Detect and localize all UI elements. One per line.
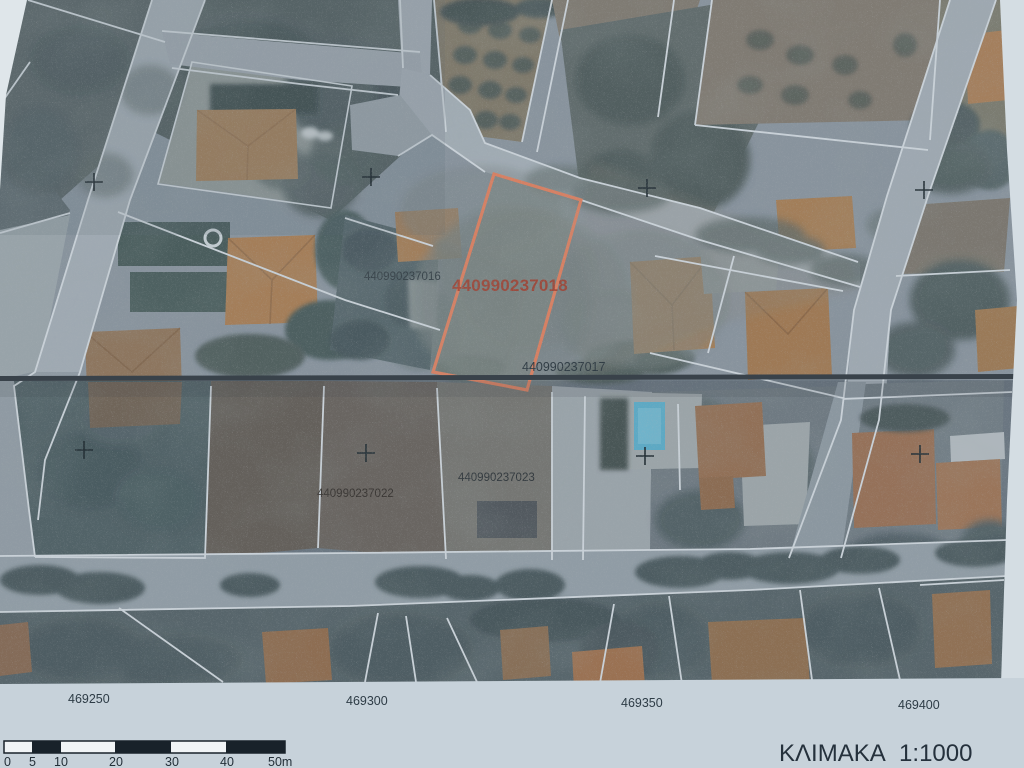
svg-text:469350: 469350 xyxy=(621,696,663,710)
svg-text:50m: 50m xyxy=(268,755,292,768)
svg-text:5: 5 xyxy=(29,755,36,768)
svg-text:0: 0 xyxy=(4,755,11,768)
svg-text:ΚΛΙΜΑΚΑ 1:1000: ΚΛΙΜΑΚΑ 1:1000 xyxy=(779,740,972,767)
svg-text:469250: 469250 xyxy=(68,692,110,706)
svg-text:469300: 469300 xyxy=(346,694,388,708)
svg-text:20: 20 xyxy=(109,755,123,768)
svg-text:40: 40 xyxy=(220,755,234,768)
svg-text:469400: 469400 xyxy=(898,698,940,712)
svg-text:30: 30 xyxy=(165,755,179,768)
svg-text:10: 10 xyxy=(54,755,68,768)
